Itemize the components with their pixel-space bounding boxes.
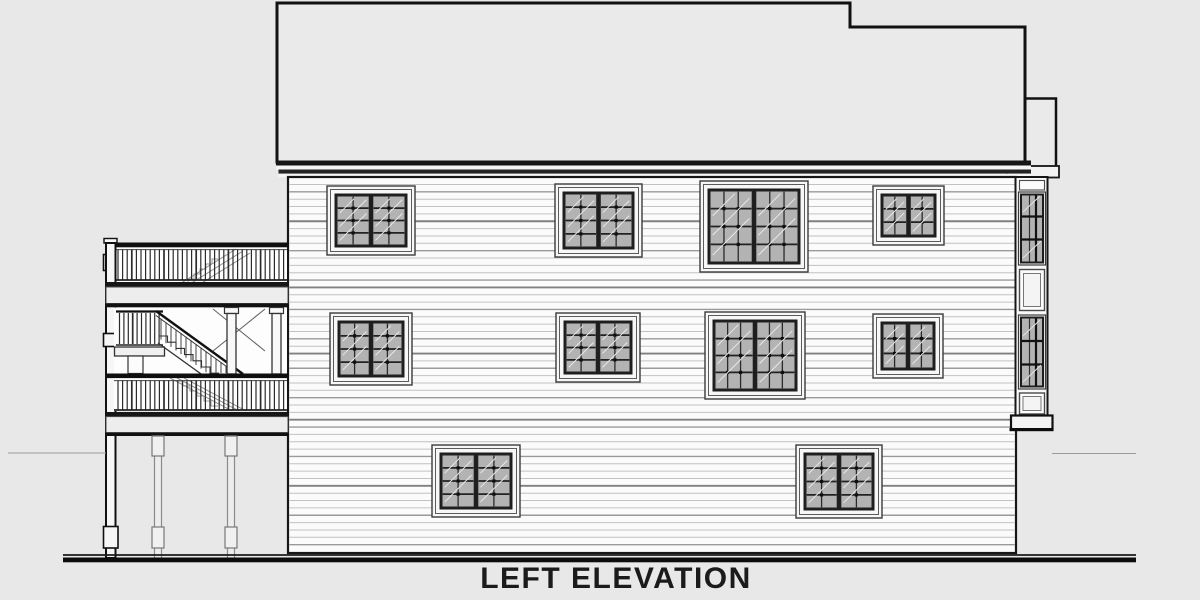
drawing-canvas: LEFT ELEVATION bbox=[0, 0, 1200, 600]
window bbox=[873, 314, 943, 378]
lower-deck-fascia bbox=[106, 417, 288, 433]
window bbox=[556, 313, 640, 382]
stair-landing bbox=[115, 347, 165, 356]
roof-step-right bbox=[1025, 99, 1056, 169]
deck-upper bbox=[104, 239, 289, 308]
window bbox=[327, 186, 415, 255]
window bbox=[705, 312, 805, 399]
drawing-title: LEFT ELEVATION bbox=[480, 562, 752, 596]
window bbox=[330, 313, 412, 385]
roof-outline bbox=[277, 3, 1025, 162]
bay-window-lower bbox=[1019, 315, 1046, 389]
eave-fascia bbox=[276, 161, 1031, 178]
upper-deck-rim bbox=[106, 282, 288, 287]
upper-top-rail bbox=[106, 243, 289, 248]
lower-top-rail bbox=[106, 374, 289, 379]
window bbox=[873, 186, 944, 245]
left-elevation-drawing bbox=[0, 0, 1200, 600]
deck-wall-post bbox=[272, 314, 281, 375]
bay-window-upper bbox=[1019, 192, 1046, 265]
bay-base-block bbox=[1010, 416, 1054, 432]
bay-frieze-panel bbox=[1020, 181, 1045, 191]
bay-base-panel bbox=[1020, 393, 1045, 414]
window bbox=[555, 184, 642, 257]
deck-lower bbox=[106, 374, 289, 437]
window bbox=[796, 445, 882, 518]
window bbox=[432, 445, 520, 517]
stair-newel-post bbox=[227, 314, 236, 375]
bay-spandrel-panel bbox=[1020, 270, 1045, 311]
deck-support-posts bbox=[152, 436, 237, 558]
window bbox=[700, 181, 808, 272]
right-bay bbox=[1010, 177, 1054, 431]
lower-deck-rim bbox=[106, 412, 288, 417]
upper-deck-fascia bbox=[106, 287, 288, 304]
roof bbox=[276, 3, 1059, 178]
